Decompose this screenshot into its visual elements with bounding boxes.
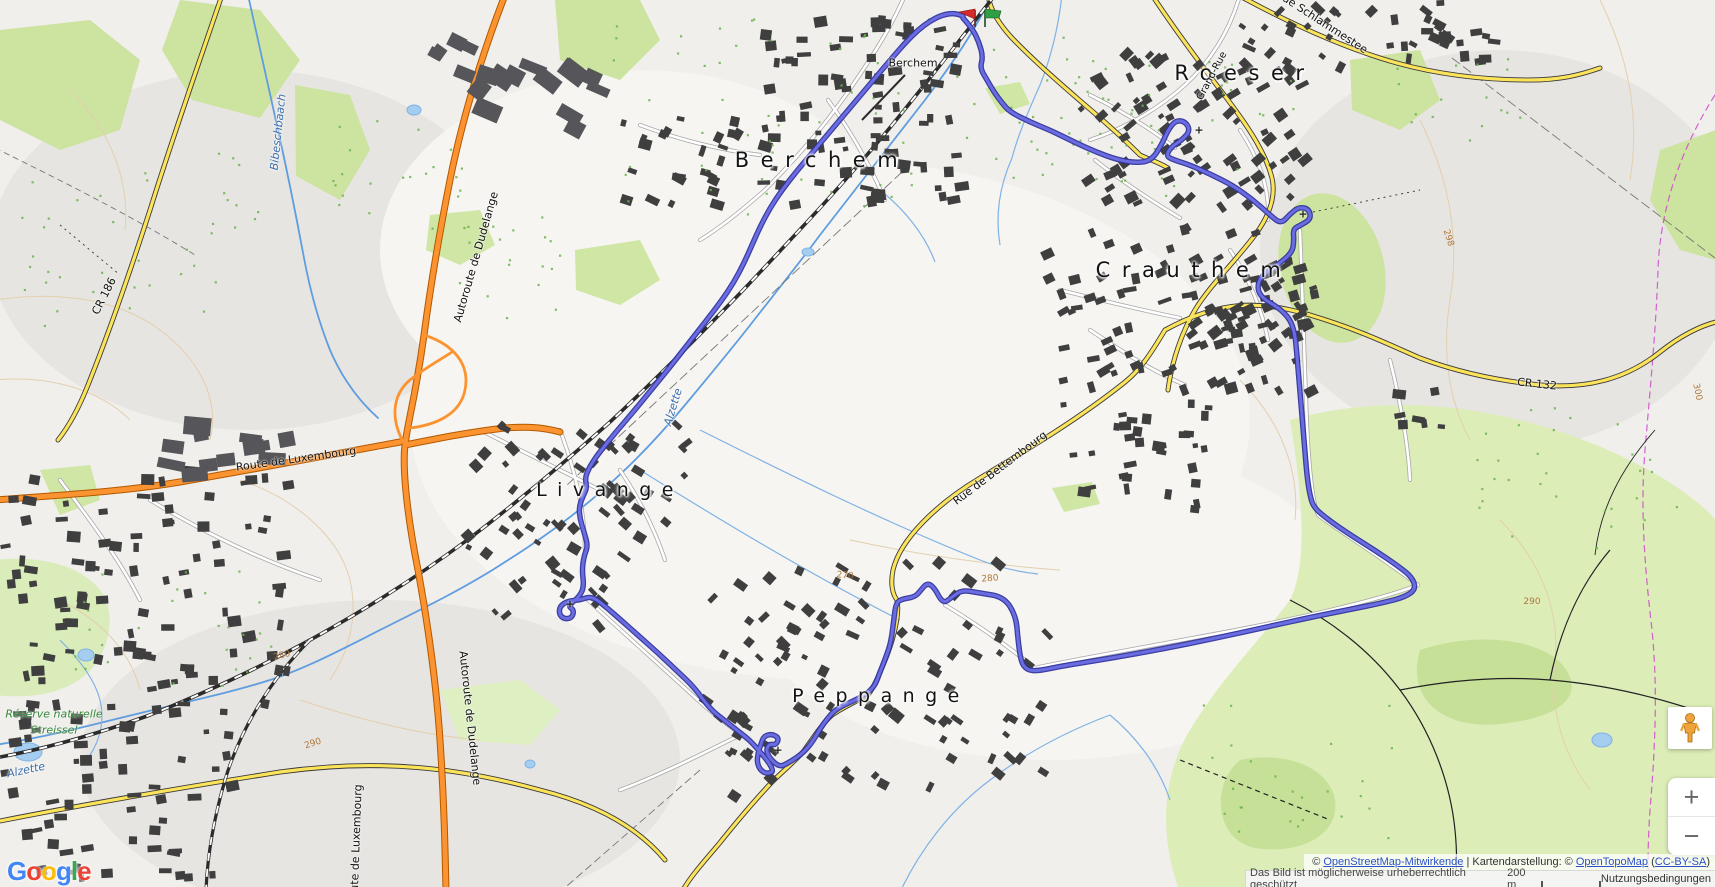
license-close: ): [1706, 856, 1710, 868]
zoom-out-button[interactable]: −: [1668, 817, 1715, 855]
zoom-in-button[interactable]: +: [1668, 778, 1715, 817]
copyright-notice: Das Bild ist möglicherweise urheberrecht…: [1250, 867, 1493, 887]
google-logo-letter: g: [56, 856, 71, 886]
zoom-control: + −: [1668, 778, 1715, 855]
terms-of-use-link[interactable]: Nutzungsbedingungen: [1601, 873, 1711, 885]
google-logo-letter: G: [7, 856, 26, 886]
bottom-status-bar: Das Bild ist möglicherweise urheberrecht…: [1245, 870, 1715, 887]
topo-map-canvas[interactable]: [0, 0, 1715, 887]
license-link[interactable]: CC-BY-SA: [1655, 856, 1707, 868]
google-logo-letter: e: [77, 856, 90, 886]
scale-bar: [1541, 881, 1601, 887]
google-logo-letter: o: [26, 856, 41, 886]
pegman-control[interactable]: [1668, 707, 1712, 749]
pegman-icon: [1678, 712, 1702, 744]
google-logo-letter: o: [41, 856, 56, 886]
scale-label: 200 m: [1507, 867, 1535, 887]
map-viewport[interactable]: Berchem Roeser Crauthem Livange Peppange…: [0, 0, 1715, 887]
google-logo[interactable]: Google: [7, 856, 91, 887]
map-scale: 200 m: [1507, 867, 1601, 887]
